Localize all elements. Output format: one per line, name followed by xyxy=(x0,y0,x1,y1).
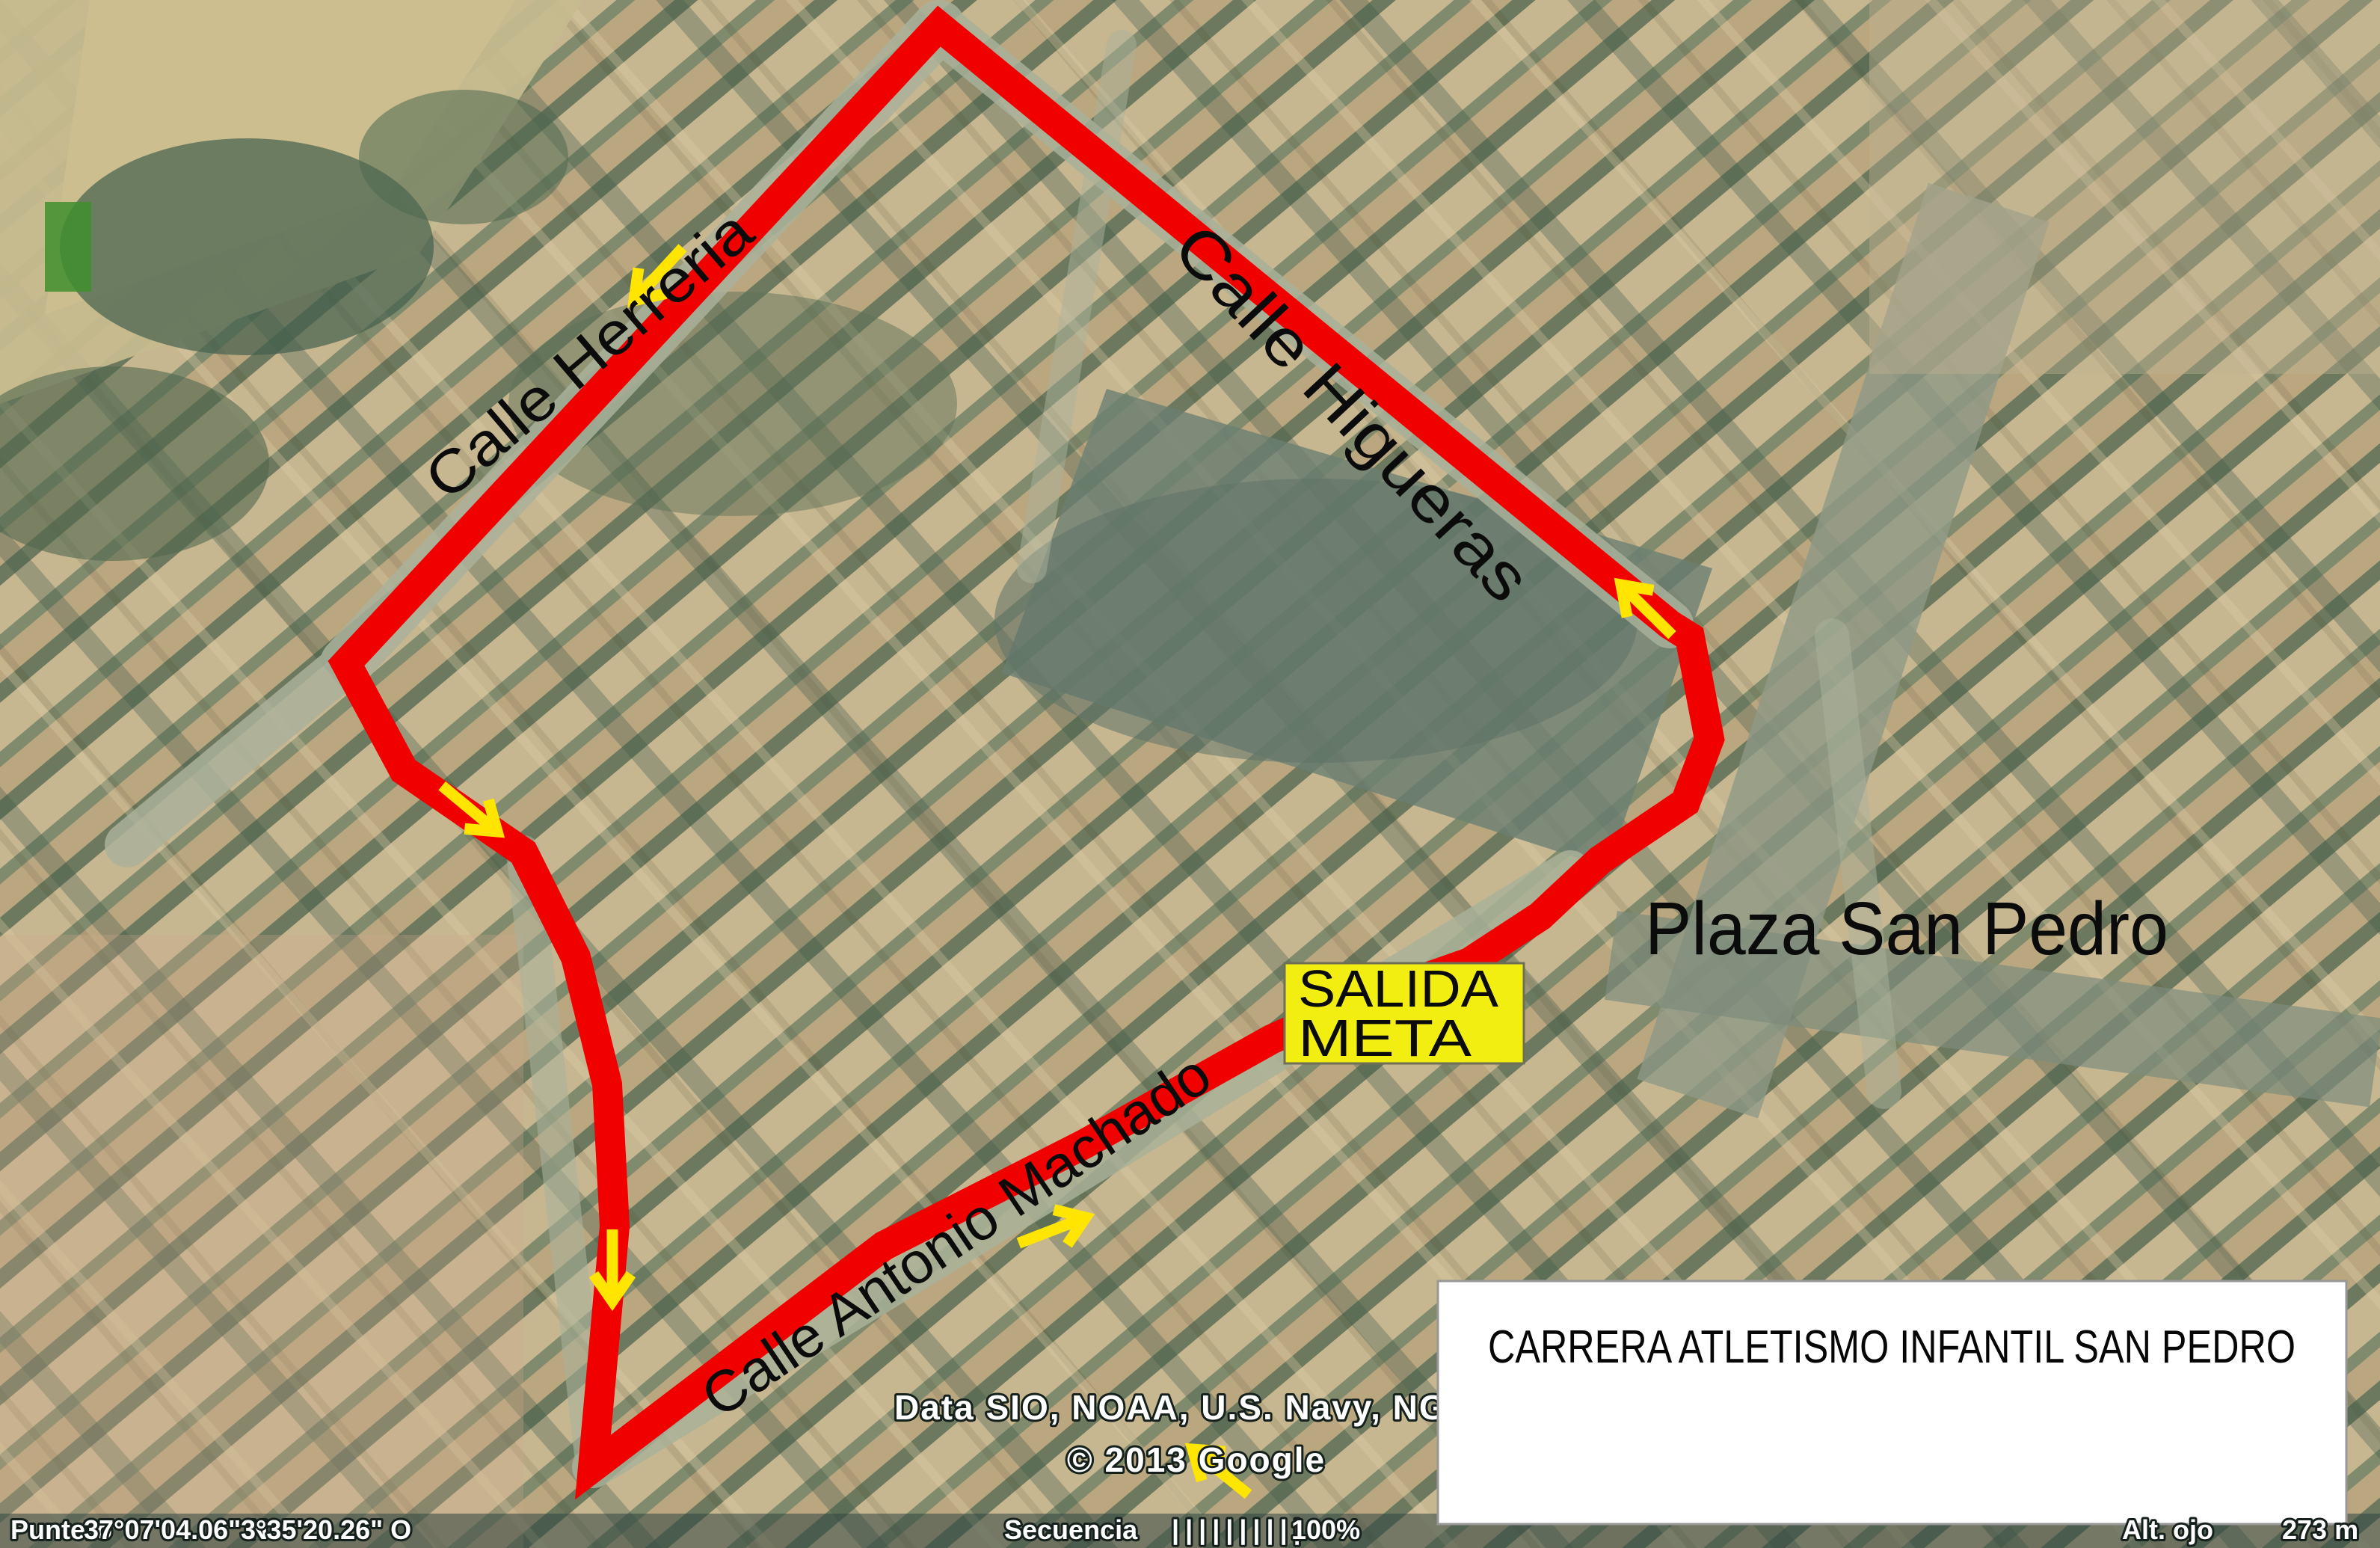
meta-label: META xyxy=(1298,1009,1472,1067)
google-earth-window: Calle Herreria Calle Higueras Calle Anto… xyxy=(0,0,2380,1548)
sequence-label: Secuencia xyxy=(1004,1514,1138,1545)
event-title: CARRERA ATLETISMO INFANTIL SAN PEDRO xyxy=(1488,1321,2296,1373)
plaza-san-pedro-label: Plaza San Pedro xyxy=(1645,887,2168,971)
attribution-line2: © 2013 Google xyxy=(1067,1440,1326,1479)
event-title-box: CARRERA ATLETISMO INFANTIL SAN PEDRO xyxy=(1438,1281,2346,1524)
start-finish-marker: SALIDA META xyxy=(1285,959,1524,1067)
eye-altitude-label: Alt. ojo xyxy=(2122,1514,2213,1545)
aerial-map-viewport[interactable]: Calle Herreria Calle Higueras Calle Anto… xyxy=(0,0,2380,1548)
event-title-background xyxy=(1438,1281,2346,1524)
sequence-percent: 100% xyxy=(1291,1514,1360,1545)
eye-altitude-value: 273 m xyxy=(2282,1514,2358,1545)
pointer-longitude: 3°35'20.26" O xyxy=(241,1514,411,1545)
sequence-slider[interactable]: |||||||||| xyxy=(1172,1514,1307,1546)
